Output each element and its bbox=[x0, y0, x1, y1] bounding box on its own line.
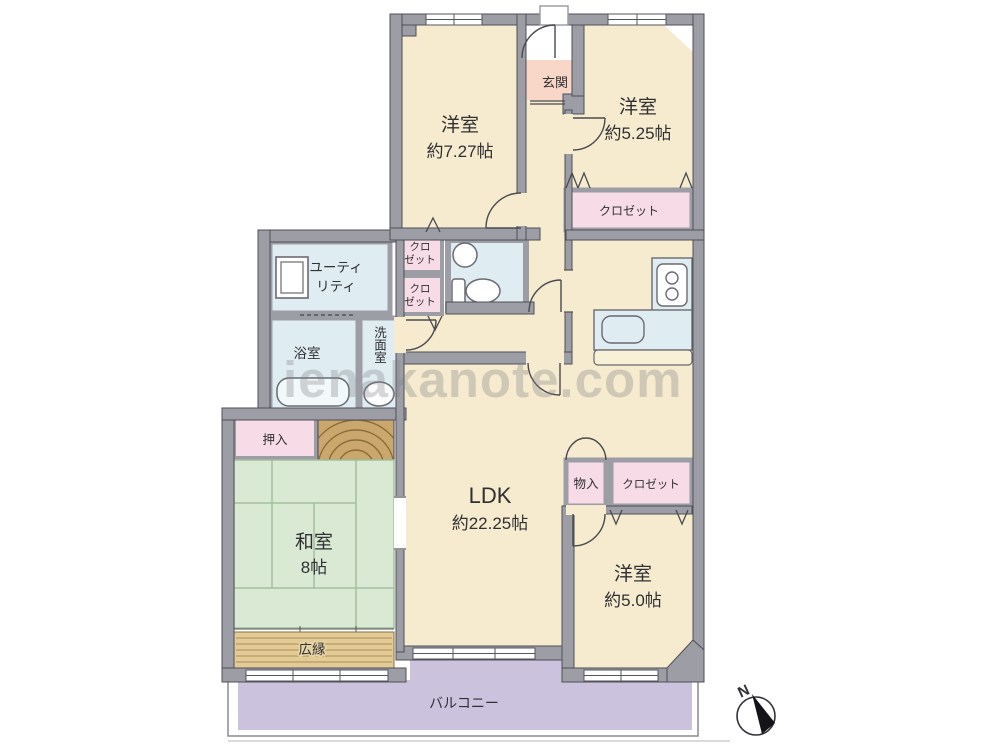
washbasin-icon bbox=[364, 382, 394, 406]
hall-pocket-floor bbox=[404, 312, 565, 352]
entrance-label: 玄関 bbox=[542, 75, 568, 90]
kitchen-sink-icon bbox=[602, 316, 644, 343]
toilet-basin-icon bbox=[453, 243, 477, 267]
washitsu-opening bbox=[394, 496, 406, 550]
bedroom2-name: 洋室 bbox=[619, 96, 657, 118]
closet-small-2-line1: クロ bbox=[410, 283, 431, 295]
bedroom1-size: 約7.27帖 bbox=[426, 142, 493, 161]
toilet-tank-icon bbox=[452, 279, 465, 304]
window-hiroen-bottom bbox=[246, 670, 388, 681]
bedroom1-door-gap bbox=[516, 193, 527, 226]
bedroom3-name: 洋室 bbox=[614, 563, 652, 585]
ldk-name: LDK bbox=[469, 483, 512, 508]
window-bedroom3-bottom bbox=[584, 670, 658, 681]
closet-small-1-line2: ゼット bbox=[404, 254, 436, 266]
bedroom1-name: 洋室 bbox=[441, 114, 479, 136]
tokonoma-wood bbox=[318, 414, 394, 460]
ldk-size: 約22.25帖 bbox=[452, 514, 529, 533]
entrance-porch bbox=[540, 6, 568, 25]
washitsu-name: 和室 bbox=[295, 531, 333, 553]
floor-plan: ienakanote.com bbox=[0, 0, 1000, 750]
toilet-bowl-icon bbox=[466, 279, 500, 303]
closet-bottom-right-label: クロゼット bbox=[622, 478, 680, 491]
balcony-label: バルコニー bbox=[429, 695, 499, 711]
closet-small-1-line1: クロ bbox=[410, 241, 431, 253]
bedroom3-door-gap bbox=[566, 505, 606, 515]
washroom-label: 洗面室 bbox=[372, 326, 386, 364]
washitsu-size: 8帖 bbox=[301, 558, 327, 577]
window-ldk-bottom bbox=[413, 648, 535, 659]
bedroom2-door-gap bbox=[564, 114, 573, 154]
utility-line1: ユーティ bbox=[309, 260, 362, 275]
utility-line2: リティ bbox=[316, 279, 356, 294]
bedroom2-size: 約5.25帖 bbox=[604, 124, 671, 143]
hiroen-label: 広縁 bbox=[299, 642, 326, 657]
bath-label: 浴室 bbox=[294, 345, 321, 361]
window-bedroom2-top bbox=[608, 14, 666, 25]
compass-icon: N bbox=[735, 682, 775, 735]
closet-small-2-line2: ゼット bbox=[404, 296, 436, 308]
closet-small-2-box bbox=[398, 276, 442, 314]
bedroom3-size: 約5.0帖 bbox=[604, 591, 662, 610]
counter-front bbox=[594, 350, 692, 365]
washroom-door-gap bbox=[394, 317, 406, 353]
floor-plan-drawing: N 洋室 約7.27帖 玄関 洋室 約5.25帖 クロゼット クロ ゼット クロ… bbox=[0, 0, 1000, 750]
closet-top-right-label: クロゼット bbox=[599, 204, 659, 218]
oshiire-label: 押入 bbox=[262, 433, 288, 447]
kitchen-opening bbox=[564, 270, 573, 312]
bathtub-icon bbox=[277, 378, 349, 406]
window-bedroom1-top bbox=[426, 14, 482, 25]
monoire-label: 物入 bbox=[573, 477, 599, 491]
hall-ldk-door-gap bbox=[526, 351, 564, 365]
entrance-recess-floor bbox=[526, 25, 572, 60]
